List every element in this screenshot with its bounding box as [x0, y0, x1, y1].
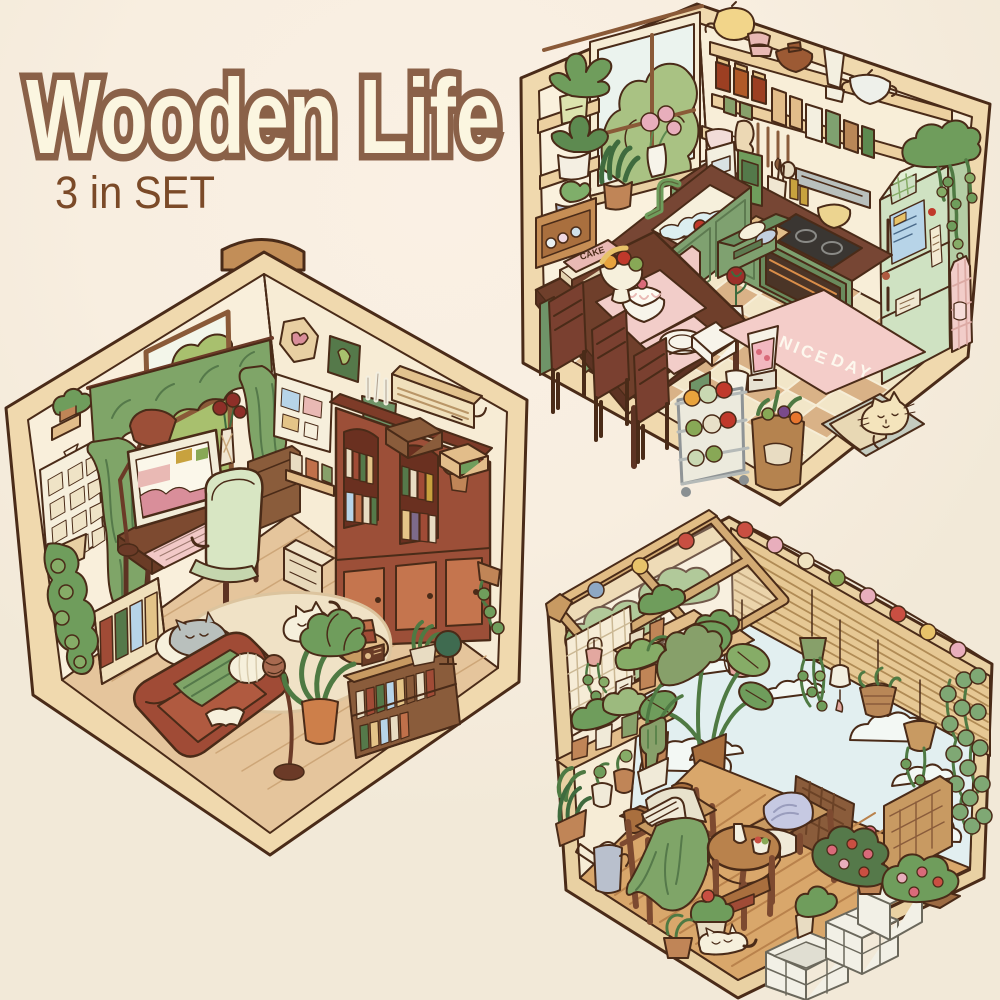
svg-text:3 in SET: 3 in SET: [55, 167, 215, 218]
svg-text:Wooden Life: Wooden Life: [26, 58, 500, 176]
